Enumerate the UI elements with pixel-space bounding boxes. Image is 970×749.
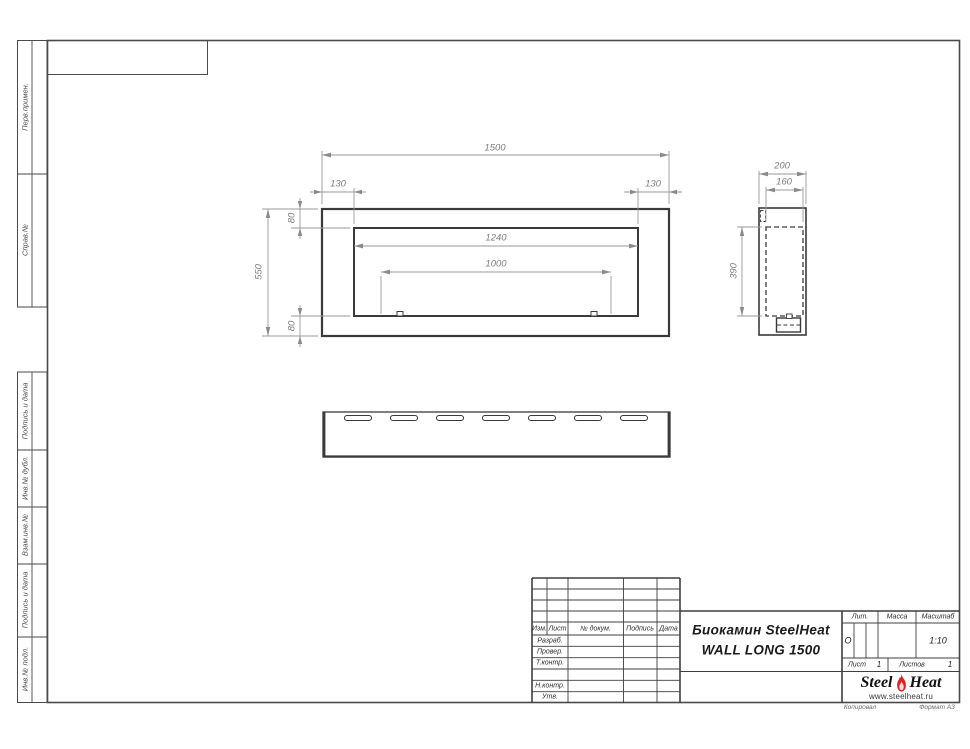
dim-label-80-bottom: 80 [287, 321, 297, 332]
flame-icon [894, 674, 909, 693]
dim-label-1240: 1240 [485, 233, 506, 243]
titleblock-row-nkontr: Н.контр. [535, 683, 565, 690]
drawing-sheet: Перв.примен. Справ.№ Подпись и дата Инв.… [0, 0, 970, 749]
margin-label-inv-dubl: Инв.№ дубл. [21, 456, 29, 500]
logo-website: www.steelheat.ru [869, 693, 933, 701]
titleblock-col-podpis: Подпись [626, 625, 654, 632]
titleblock-col-list: Лист [548, 625, 566, 632]
titleblock-sheets-value: 1 [948, 661, 952, 669]
titleblock-row-razrab: Разраб. [537, 637, 562, 644]
footer-copied-label: Копировал [844, 705, 876, 712]
dim-label-200: 200 [774, 161, 790, 171]
dim-label-130-right: 130 [645, 179, 661, 189]
steelheat-logo: Steel Heat www.steelheat.ru [843, 672, 959, 702]
document-title-line1: Биокамин SteelHeat [692, 623, 830, 637]
titleblock-scale-label: Масштаб [922, 614, 955, 621]
footer-format-label: Формат А3 [919, 705, 955, 712]
titleblock-row-prover: Провер. [537, 649, 563, 656]
dim-label-130-left: 130 [330, 179, 346, 189]
titleblock-col-doc: № докум. [580, 625, 611, 632]
titleblock-lit-label: Лит. [852, 614, 868, 621]
margin-label-podpis-data-2: Подпись и дата [21, 572, 29, 629]
margin-label-sprav-no: Справ.№ [21, 224, 29, 256]
dim-label-160: 160 [776, 177, 792, 187]
logo-steel-text: Steel [861, 675, 893, 691]
titleblock-massa-label: Масса [887, 614, 908, 621]
document-title-line2: WALL LONG 1500 [702, 643, 821, 657]
dim-label-1000: 1000 [485, 259, 506, 269]
titleblock-sheets-label: Листов [899, 661, 925, 668]
dim-label-550: 550 [254, 264, 264, 280]
dim-label-1500: 1500 [484, 143, 505, 153]
titleblock-col-data: Дата [659, 625, 677, 632]
titleblock-lit-value: О [844, 636, 851, 645]
margin-label-inv-podl: Инв.№ подл. [21, 647, 29, 691]
titleblock-col-izm: Изм. [532, 625, 547, 632]
dim-label-80-top: 80 [287, 213, 297, 224]
titleblock-scale-value: 1:10 [929, 636, 947, 645]
steelheat-logo-wordmark: Steel Heat [861, 674, 942, 693]
margin-label-vzam-inv: Взам.инв.№ [21, 514, 29, 556]
dim-label-390: 390 [729, 263, 739, 279]
logo-heat-text: Heat [910, 675, 942, 691]
titleblock-row-tkontr: Т.контр. [536, 660, 564, 667]
titleblock-row-utv: Утв. [542, 694, 558, 701]
margin-label-perv-primen: Перв.примен. [21, 83, 29, 131]
titleblock-sheet-label: Лист [848, 661, 866, 668]
margin-label-podpis-data-1: Подпись и дата [21, 383, 29, 440]
titleblock-sheet-value: 1 [877, 661, 881, 669]
